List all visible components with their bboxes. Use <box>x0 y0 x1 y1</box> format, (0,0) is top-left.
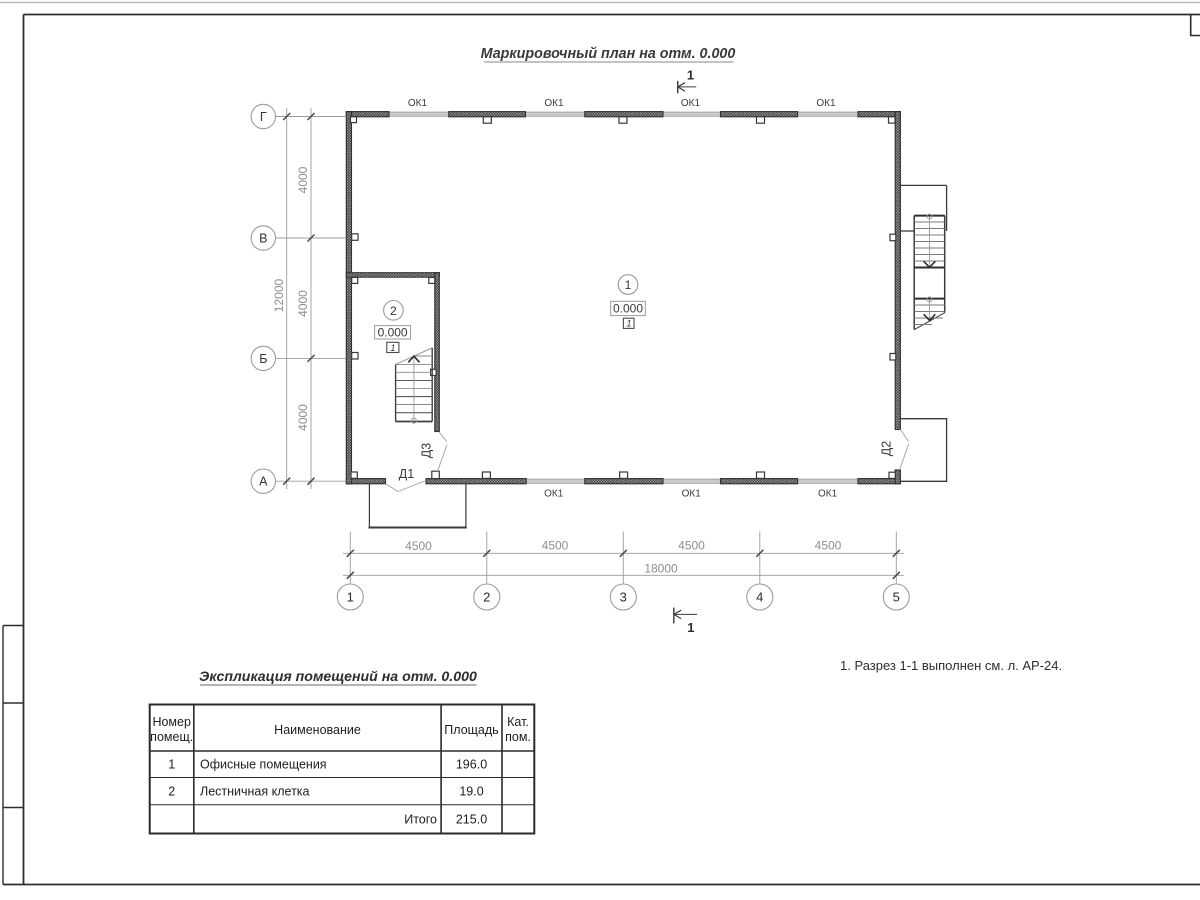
svg-text:ОК1: ОК1 <box>544 488 564 499</box>
svg-text:В: В <box>259 232 267 246</box>
svg-text:2: 2 <box>483 590 490 605</box>
svg-text:12000: 12000 <box>272 278 286 312</box>
svg-text:Д2: Д2 <box>880 441 894 456</box>
svg-text:18000: 18000 <box>644 561 678 575</box>
svg-text:ОК1: ОК1 <box>816 98 836 109</box>
svg-text:Экспликация помещений на отм.: Экспликация помещений на отм. 0.000 <box>199 668 477 684</box>
svg-text:4000: 4000 <box>296 166 310 193</box>
svg-text:ОК1: ОК1 <box>681 98 701 109</box>
svg-text:1: 1 <box>390 343 395 354</box>
svg-text:Г: Г <box>260 110 267 124</box>
svg-text:0.000: 0.000 <box>378 325 408 339</box>
svg-text:1: 1 <box>347 590 354 605</box>
svg-text:ОК1: ОК1 <box>544 98 564 109</box>
svg-text:19.0: 19.0 <box>459 785 483 799</box>
svg-text:1: 1 <box>625 278 632 292</box>
svg-text:196.0: 196.0 <box>456 758 487 772</box>
svg-text:4500: 4500 <box>678 539 705 553</box>
svg-text:ОК1: ОК1 <box>682 489 702 500</box>
svg-text:4500: 4500 <box>542 539 569 553</box>
svg-text:4: 4 <box>756 590 763 605</box>
svg-text:1: 1 <box>168 758 175 772</box>
svg-text:4000: 4000 <box>296 290 310 317</box>
svg-text:4500: 4500 <box>405 539 432 553</box>
svg-text:Маркировочный план на отм. 0.0: Маркировочный план на отм. 0.000 <box>481 46 736 62</box>
svg-text:Д1: Д1 <box>399 467 414 481</box>
svg-text:А: А <box>259 475 268 489</box>
svg-text:4000: 4000 <box>296 404 310 431</box>
svg-text:1. Разрез 1-1 выполнен см. л.: 1. Разрез 1-1 выполнен см. л. АР-24. <box>840 658 1062 673</box>
svg-text:ОК1: ОК1 <box>818 489 838 500</box>
svg-text:215.0: 215.0 <box>456 813 487 827</box>
svg-text:Д3: Д3 <box>420 443 434 458</box>
svg-text:Б: Б <box>259 352 267 366</box>
svg-text:2: 2 <box>390 304 397 318</box>
svg-text:0.000: 0.000 <box>613 301 643 315</box>
svg-text:4500: 4500 <box>815 539 842 553</box>
svg-text:1: 1 <box>687 620 694 635</box>
svg-text:Лестничная клетка: Лестничная клетка <box>200 785 310 799</box>
svg-text:2: 2 <box>168 785 175 799</box>
svg-text:1: 1 <box>626 318 631 329</box>
svg-text:Наименование: Наименование <box>274 723 361 737</box>
svg-text:Номер: Номер <box>152 715 191 729</box>
svg-text:1: 1 <box>687 68 694 83</box>
svg-text:пом.: пом. <box>505 730 531 744</box>
svg-text:Офисные помещения: Офисные помещения <box>200 758 327 772</box>
svg-text:Площадь: Площадь <box>444 723 498 737</box>
svg-text:3: 3 <box>620 590 627 605</box>
svg-text:ОК1: ОК1 <box>408 98 428 109</box>
svg-text:помещ.: помещ. <box>150 730 193 744</box>
svg-text:Кат.: Кат. <box>507 715 529 729</box>
svg-text:5: 5 <box>893 590 900 605</box>
svg-text:Итого: Итого <box>404 813 437 827</box>
